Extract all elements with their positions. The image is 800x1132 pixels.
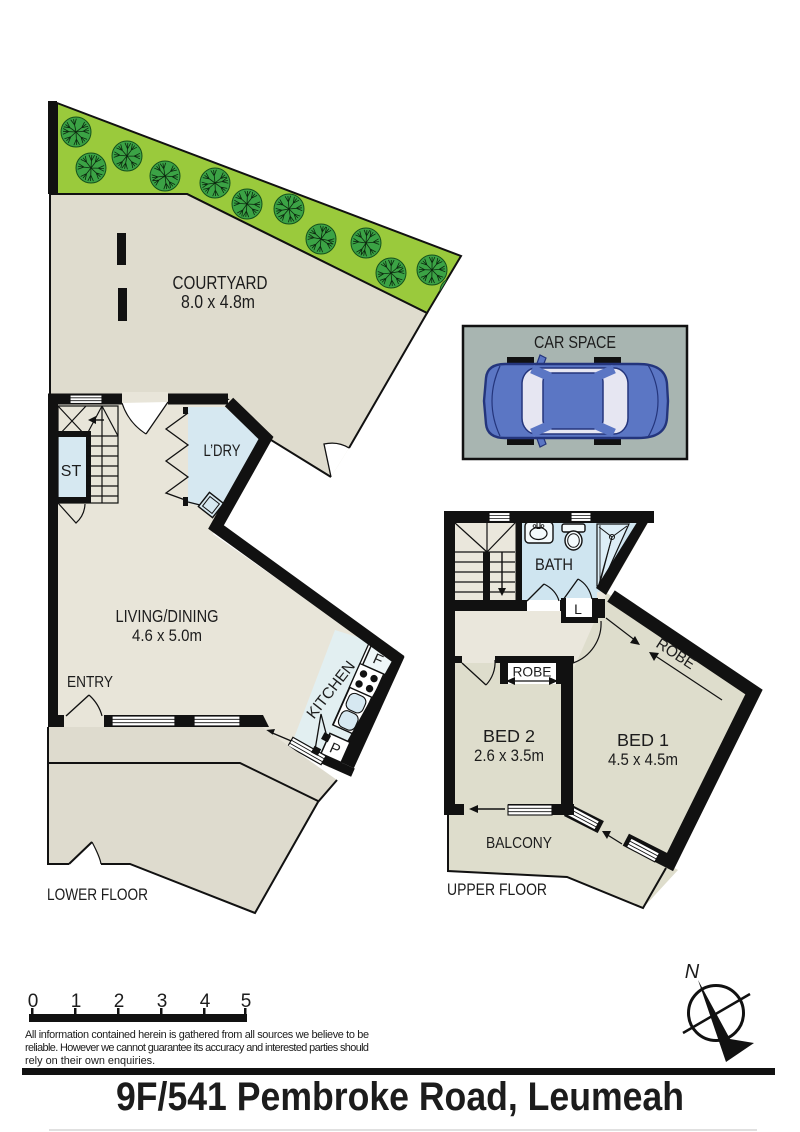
svg-text:All information contained here: All information contained herein is gath… [25, 1029, 369, 1041]
svg-text:CAR SPACE: CAR SPACE [534, 332, 616, 352]
svg-text:L: L [574, 601, 582, 617]
svg-text:UPPER FLOOR: UPPER FLOOR [447, 880, 547, 899]
svg-text:8.0 x 4.8m: 8.0 x 4.8m [181, 292, 255, 312]
svg-text:BALCONY: BALCONY [486, 835, 552, 852]
svg-text:LOWER FLOOR: LOWER FLOOR [47, 885, 148, 904]
svg-text:rely on their own enquiries.: rely on their own enquiries. [25, 1055, 155, 1067]
svg-text:2.6 x 3.5m: 2.6 x 3.5m [474, 746, 544, 765]
svg-text:ENTRY: ENTRY [67, 674, 113, 691]
svg-text:ROBE: ROBE [513, 664, 552, 680]
svg-text:ST: ST [61, 463, 82, 480]
svg-text:BED 1: BED 1 [617, 730, 669, 750]
svg-text:LIVING/DINING: LIVING/DINING [116, 606, 219, 626]
svg-text:BATH: BATH [535, 556, 573, 574]
svg-text:L’DRY: L’DRY [204, 442, 241, 460]
svg-text:COURTYARD: COURTYARD [173, 272, 268, 293]
svg-text:4.5 x 4.5m: 4.5 x 4.5m [608, 750, 678, 769]
svg-text:9F/541 Pembroke Road, Leumeah: 9F/541 Pembroke Road, Leumeah [116, 1075, 684, 1119]
svg-text:BED 2: BED 2 [483, 726, 535, 746]
svg-text:N: N [685, 961, 700, 983]
svg-text:reliable. However we cannot gu: reliable. However we cannot guarantee it… [25, 1042, 369, 1054]
svg-text:4.6 x 5.0m: 4.6 x 5.0m [132, 626, 202, 645]
